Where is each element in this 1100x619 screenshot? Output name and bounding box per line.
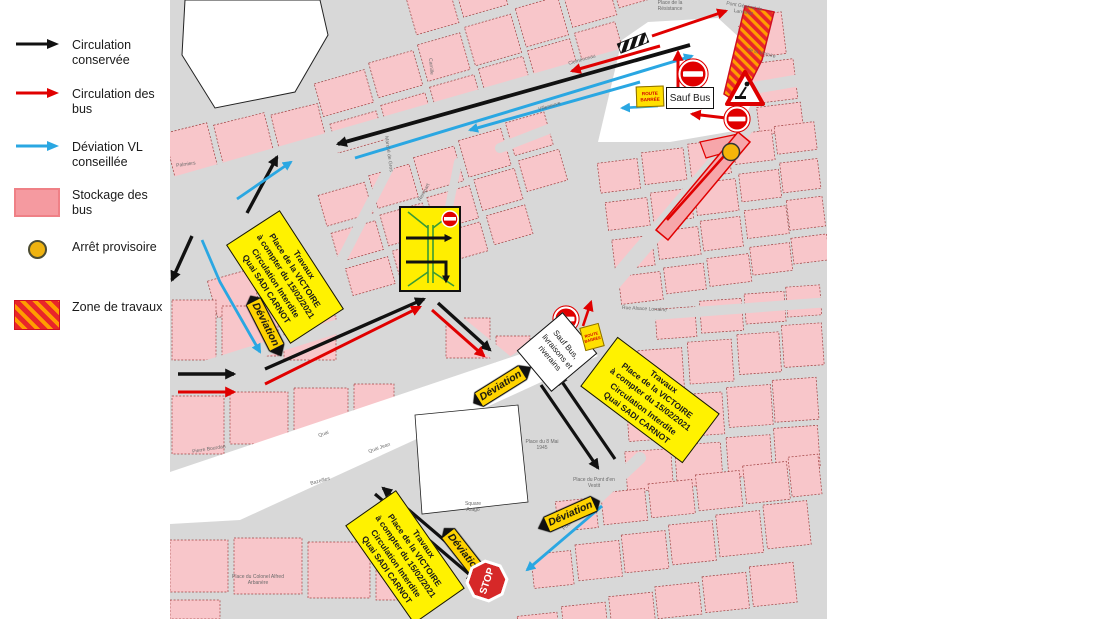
sauf-bus-box: Sauf Bus xyxy=(666,87,714,109)
legend-label: Circulation conservée xyxy=(72,38,164,68)
place-label: Place du Colonel Alfred Arbanère xyxy=(232,575,284,586)
legend-label: Stockage des bus xyxy=(72,188,164,218)
arret-provisoire-dot xyxy=(723,144,740,161)
blue-arrow-icon xyxy=(12,140,62,152)
legend-panel: Circulation conservée Circulation des bu… xyxy=(0,0,170,619)
traffic-plan-page: { "legend": { "items": [ {"symbol": "bla… xyxy=(0,0,1100,619)
no-entry-icon xyxy=(724,106,750,132)
no-entry-icon xyxy=(678,59,708,89)
pink-swatch-icon xyxy=(12,188,62,217)
legend-item-circulation-bus: Circulation des bus xyxy=(12,87,164,117)
hatched-swatch-icon xyxy=(12,300,62,330)
route-barree-sign-1: ROUTE BARRÉE xyxy=(636,86,665,108)
legend-label: Circulation des bus xyxy=(72,87,164,117)
red-arrow-icon xyxy=(12,87,62,99)
place-du-8-mai xyxy=(415,405,528,514)
place-label: Place du 8 Mai 1945 xyxy=(522,440,562,451)
black-arrow-icon xyxy=(12,38,62,50)
legend-label: Arrêt provisoire xyxy=(72,240,157,255)
yellow-dot-icon xyxy=(12,240,62,259)
legend-item-zone-travaux: Zone de travaux xyxy=(12,300,164,330)
legend-item-deviation-vl: Déviation VL conseillée xyxy=(12,140,164,170)
legend-label: Déviation VL conseillée xyxy=(72,140,164,170)
street-label: Camille xyxy=(427,58,434,75)
legend-item-stockage-bus: Stockage des bus xyxy=(12,188,164,218)
place-label: Square Arago xyxy=(458,502,488,513)
closure-diagram-sign xyxy=(400,207,460,291)
legend-item-arret-provisoire: Arrêt provisoire xyxy=(12,240,164,259)
legend-label: Zone de travaux xyxy=(72,300,162,315)
place-label: Place du Pont d'en Vestit xyxy=(570,478,618,489)
city-map: Clemenceau Villeneuve Rempart Place de l… xyxy=(170,0,827,619)
place-label: Place de la Résistance xyxy=(648,1,692,12)
legend-item-circulation-conservee: Circulation conservée xyxy=(12,38,164,68)
